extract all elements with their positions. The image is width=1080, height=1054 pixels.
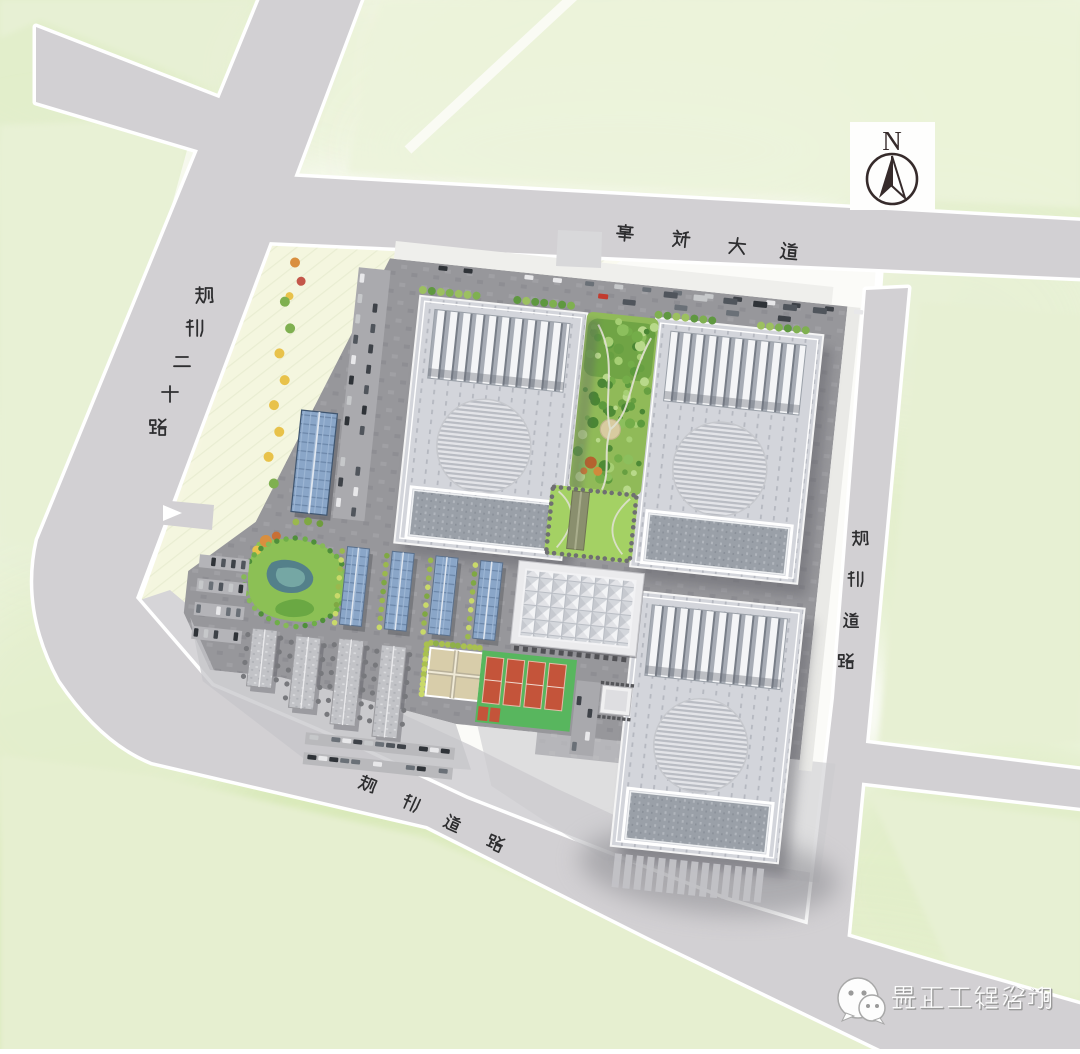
svg-text:N: N bbox=[882, 126, 902, 156]
